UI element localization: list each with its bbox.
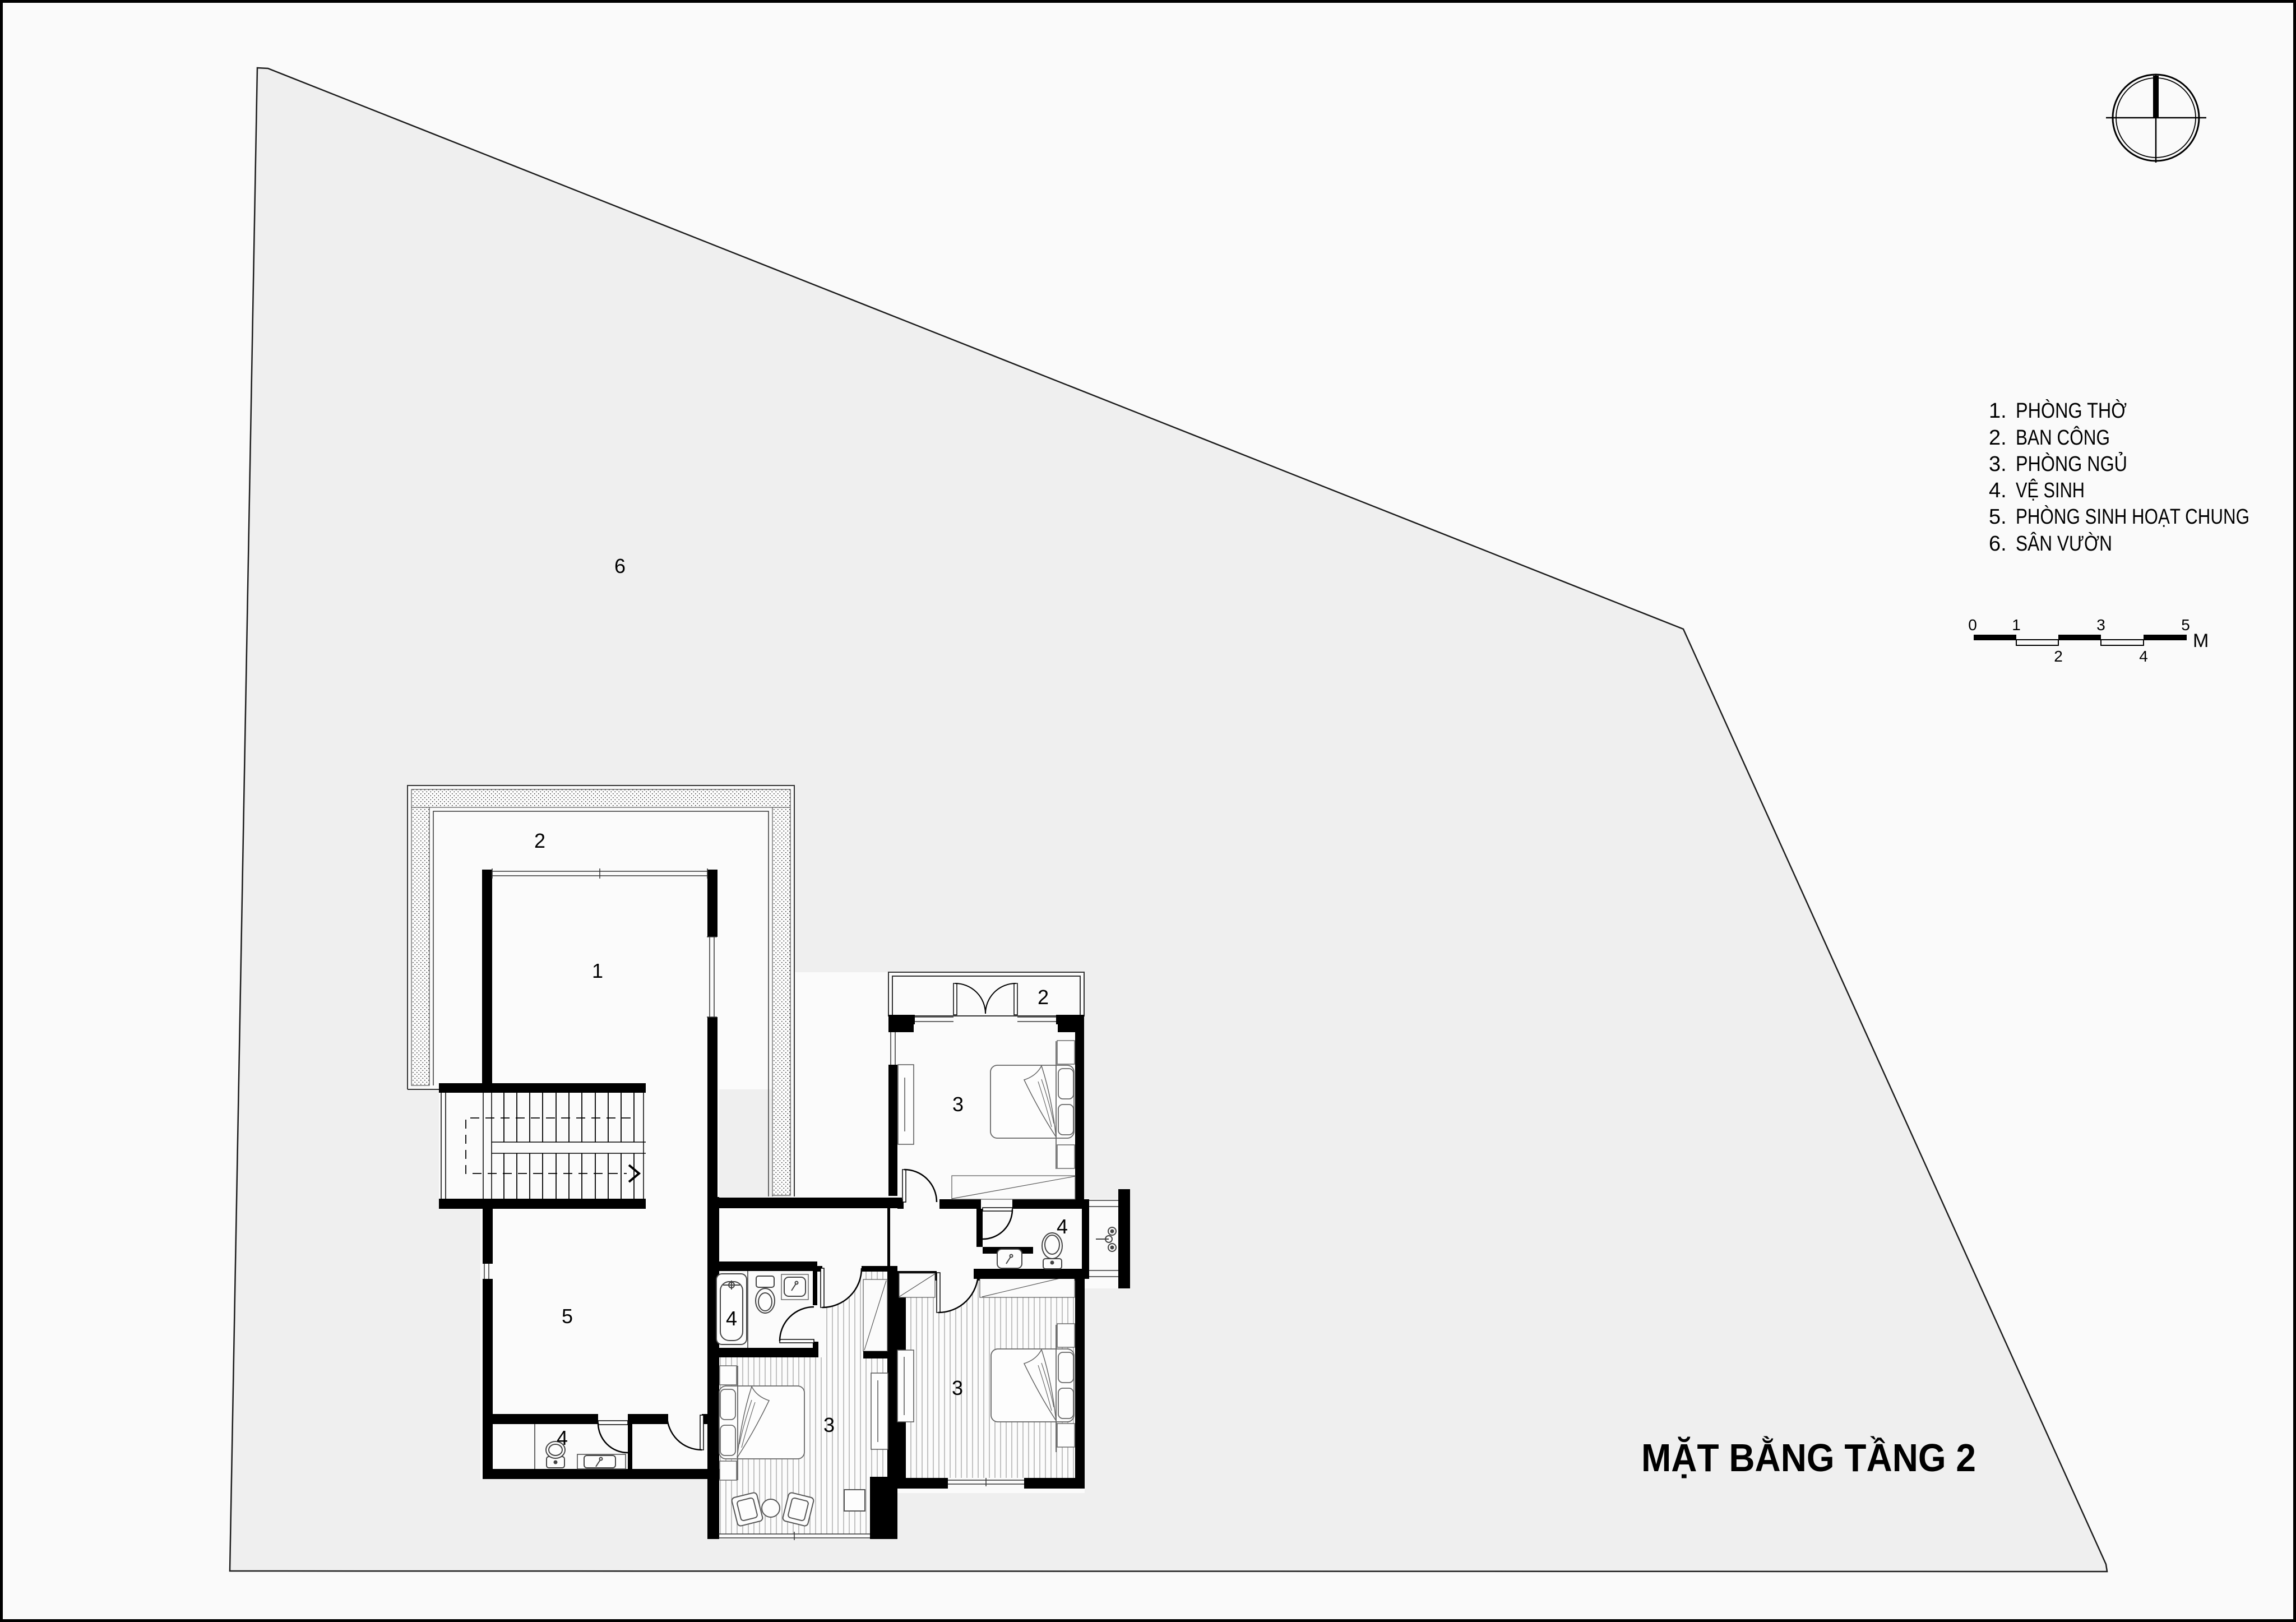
svg-text:VỆ SINH: VỆ SINH (2016, 478, 2085, 502)
svg-text:SÂN VƯỜN: SÂN VƯỜN (2016, 532, 2112, 556)
svg-text:PHÒNG THỜ: PHÒNG THỜ (2016, 399, 2127, 423)
svg-text:5: 5 (562, 1305, 573, 1328)
svg-text:2.: 2. (1989, 426, 2007, 450)
svg-text:1.: 1. (1989, 399, 2007, 423)
svg-text:2: 2 (2054, 648, 2063, 665)
svg-text:5: 5 (2181, 616, 2190, 634)
svg-text:6.: 6. (1989, 532, 2007, 556)
svg-text:PHÒNG SINH HOẠT CHUNG: PHÒNG SINH HOẠT CHUNG (2016, 505, 2249, 529)
svg-text:MẶT BẰNG TẦNG 2: MẶT BẰNG TẦNG 2 (1641, 1436, 1976, 1480)
svg-text:BAN CÔNG: BAN CÔNG (2016, 425, 2110, 450)
svg-text:4.: 4. (1989, 479, 2007, 502)
svg-text:6: 6 (614, 554, 626, 577)
svg-text:4: 4 (1057, 1215, 1068, 1238)
svg-text:4: 4 (557, 1426, 568, 1449)
svg-text:3: 3 (952, 1093, 964, 1116)
svg-text:1: 1 (2012, 616, 2021, 634)
svg-text:2: 2 (534, 829, 545, 852)
svg-text:PHÒNG NGỦ: PHÒNG NGỦ (2016, 451, 2127, 476)
svg-text:4: 4 (2139, 648, 2148, 665)
svg-text:M: M (2193, 630, 2209, 651)
svg-text:1: 1 (592, 959, 603, 982)
svg-text:3: 3 (952, 1376, 963, 1399)
svg-text:4: 4 (726, 1307, 737, 1330)
svg-text:2: 2 (1038, 986, 1049, 1009)
svg-text:3: 3 (2096, 616, 2105, 634)
svg-text:3.: 3. (1989, 452, 2007, 476)
svg-text:5.: 5. (1989, 505, 2007, 529)
svg-text:0: 0 (1968, 616, 1977, 634)
svg-text:3: 3 (823, 1413, 835, 1436)
